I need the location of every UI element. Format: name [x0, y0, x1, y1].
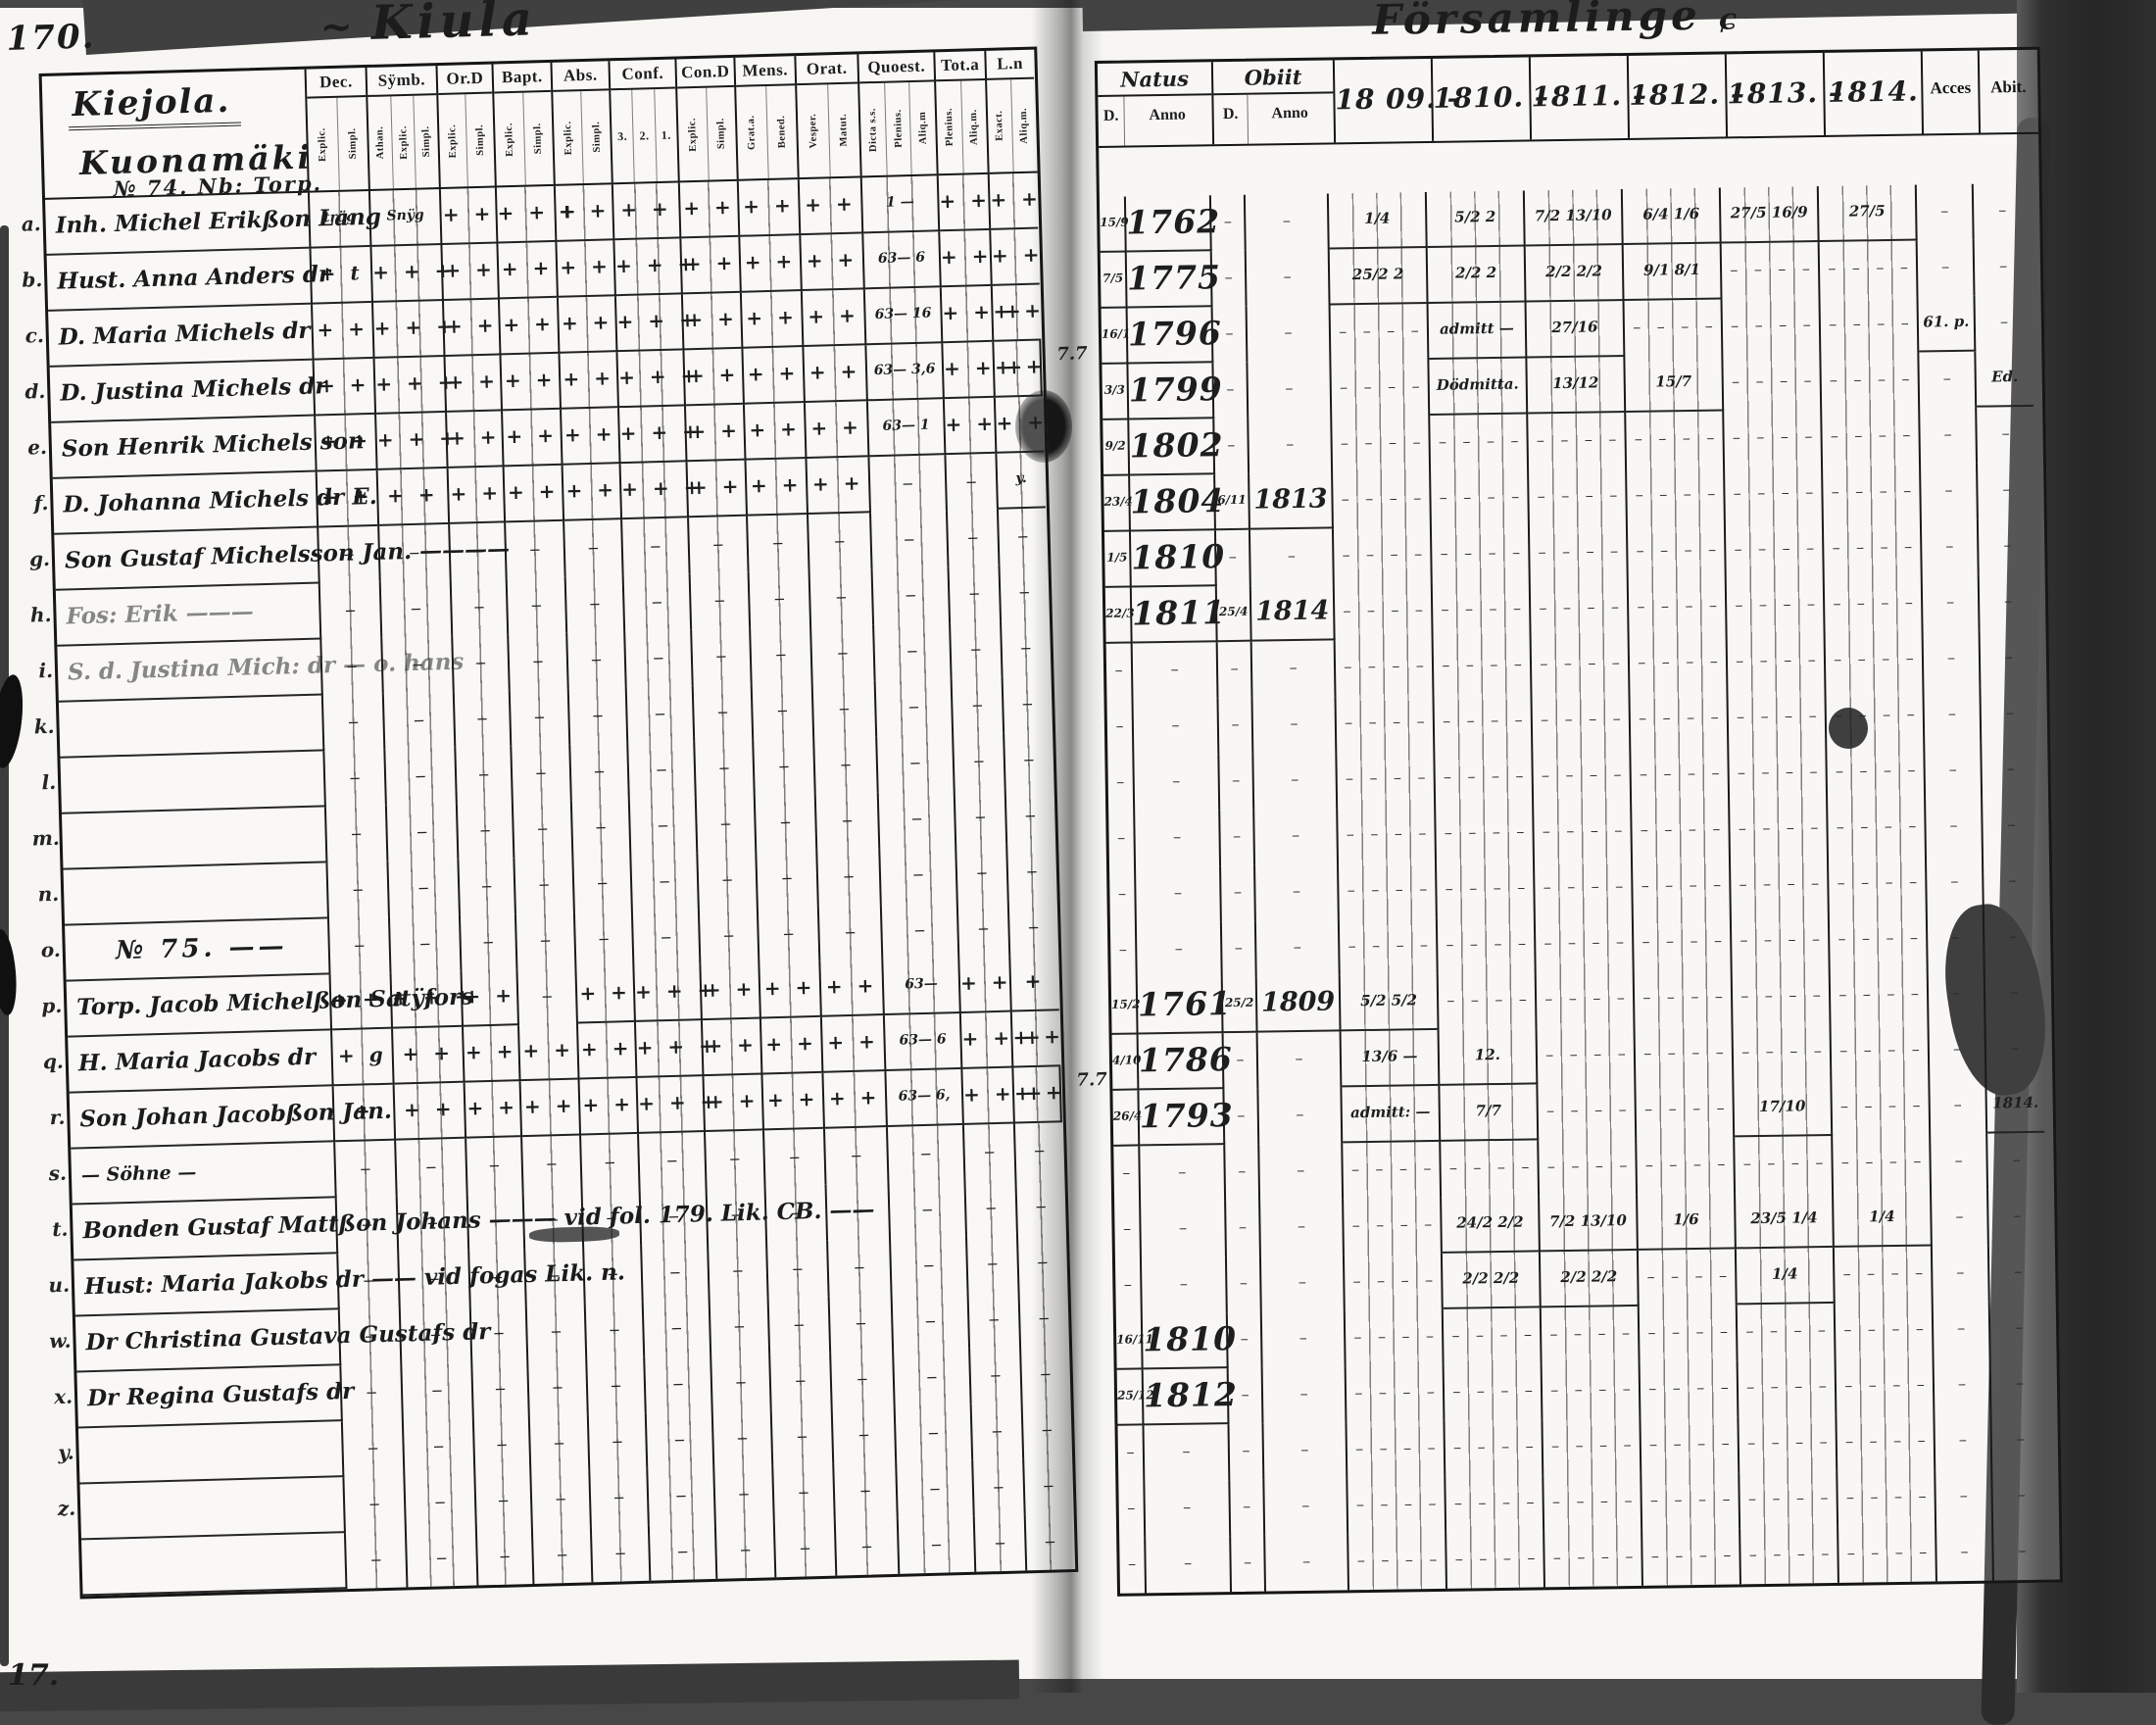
- dash: –: [1228, 419, 1235, 471]
- obiit-day-cell: –: [1216, 530, 1251, 587]
- dash: –: [1401, 1254, 1408, 1306]
- empty-dashes: ––––: [1536, 915, 1633, 969]
- natus-year-cell: 1793: [1139, 1089, 1225, 1146]
- dash: –: [1292, 809, 1298, 862]
- dash: –: [1347, 808, 1353, 861]
- dash: –: [1445, 807, 1451, 860]
- year-header: 1814.: [1825, 51, 1924, 134]
- year-entry-cell: 13/6 —: [1342, 1030, 1441, 1087]
- mark-cell: –: [404, 1418, 476, 1476]
- dash: –: [1522, 1141, 1529, 1194]
- dash: –: [1893, 1358, 1900, 1411]
- dash: –: [1691, 970, 1698, 1023]
- dash: –: [1723, 1473, 1730, 1526]
- year-entry-cell: 2/2 2/2: [1443, 1252, 1542, 1308]
- obiit-day-cell: –: [1220, 810, 1255, 866]
- dash: –: [1525, 1364, 1532, 1417]
- dash: –: [1864, 1023, 1871, 1076]
- mark-cell: –: [711, 1354, 772, 1411]
- dash: –: [1563, 581, 1570, 634]
- year-entry-cell-text: 13/6 —: [1361, 1047, 1417, 1065]
- obiit-day-cell: –: [1230, 1480, 1265, 1537]
- mark-cell: –: [1021, 1346, 1070, 1403]
- year-entry-cell: ––––: [1824, 520, 1923, 577]
- empty-dash: –: [558, 1544, 567, 1563]
- mark-cell: + +: [444, 299, 502, 357]
- dash: –: [1949, 743, 1956, 796]
- mark-cell: + + +: [373, 301, 446, 359]
- dash: –: [1491, 694, 1497, 747]
- natus-day-cell: –: [1107, 755, 1135, 811]
- natus-day-cell: –: [1106, 643, 1134, 699]
- mark-cell: –: [647, 1411, 715, 1469]
- year-entry-cell: ––––: [1434, 693, 1533, 750]
- dash: –: [1912, 1023, 1919, 1076]
- dash: –: [1403, 1365, 1410, 1418]
- empty-dashes: –: [1135, 810, 1219, 863]
- empty-dashes: –: [1118, 1481, 1144, 1534]
- dash: –: [2015, 1245, 2022, 1298]
- dash: –: [1866, 1135, 1873, 1188]
- natus-day-cell: 1/5: [1104, 531, 1132, 587]
- empty-dashes: ––––: [1836, 1302, 1933, 1355]
- margin-letter: n.: [33, 869, 61, 926]
- dash: –: [1854, 353, 1861, 406]
- dash: –: [1839, 968, 1846, 1021]
- empty-dashes: –: [1984, 854, 2041, 908]
- empty-dash: –: [835, 530, 845, 550]
- dash: –: [1285, 306, 1292, 359]
- dash: –: [1577, 1475, 1584, 1528]
- dash: –: [1868, 1303, 1875, 1355]
- year-entry-cell-text: 17/10: [1759, 1097, 1805, 1115]
- mark-text: + +: [449, 424, 501, 449]
- acces-cell: –: [1935, 1357, 1992, 1414]
- dash: –: [1390, 471, 1396, 524]
- dash: –: [1790, 1024, 1797, 1077]
- obiit-day-cell: –: [1229, 1368, 1264, 1425]
- empty-dash: –: [1023, 693, 1033, 713]
- empty-dash: –: [434, 1435, 444, 1454]
- year-entry-cell: ––––: [1629, 578, 1728, 635]
- empty-dash: –: [371, 1549, 381, 1568]
- subheader-label: Simpl.: [474, 124, 486, 156]
- empty-dashes: –: [1924, 687, 1980, 741]
- dash: –: [1812, 912, 1819, 965]
- dash: –: [1832, 466, 1838, 518]
- year-entry-cell: ––––: [1445, 1363, 1543, 1420]
- natus-year-cell: 1811: [1132, 586, 1218, 643]
- dash: –: [1830, 354, 1837, 407]
- dash: –: [2019, 1524, 2026, 1577]
- mark-cell: –: [587, 1357, 647, 1415]
- dash: –: [1648, 1306, 1655, 1359]
- natus-year-cell-text: 1775: [1127, 258, 1221, 297]
- margin-note: 7.7: [1076, 1069, 1107, 1091]
- mark-cell: –: [879, 790, 957, 848]
- empty-dashes: ––––: [1629, 579, 1726, 633]
- mark-cell: –: [474, 1416, 532, 1474]
- dash: –: [1567, 805, 1574, 858]
- dash: –: [1871, 1470, 1878, 1523]
- margin-letter: q.: [37, 1037, 65, 1094]
- year-entry-cell: ––––: [1731, 857, 1830, 913]
- empty-dash: –: [676, 1485, 686, 1504]
- year-entry-cell: 27/5: [1819, 185, 1918, 242]
- person-name: № 75. ——: [74, 918, 328, 978]
- mark-cell: + +: [393, 1027, 465, 1085]
- acces-cell: –: [1930, 1078, 1987, 1135]
- left-column-headers: Dec.Explic.Simpl.Sÿmb.Athan.Explic.Simpl…: [307, 50, 1037, 191]
- dash: –: [1735, 522, 1741, 575]
- dash: –: [1610, 468, 1617, 521]
- dash: –: [2002, 407, 2009, 460]
- empty-dashes: –: [1932, 1190, 1987, 1244]
- dash: –: [1748, 1472, 1755, 1525]
- empty-dash: –: [905, 528, 914, 548]
- mark-cell: –: [698, 852, 759, 910]
- empty-dash: –: [412, 598, 421, 617]
- empty-dash: –: [432, 1379, 442, 1399]
- empty-dashes: –: [1259, 1143, 1342, 1197]
- mark-cell: –: [973, 1458, 1026, 1515]
- empty-dashes: –: [1935, 1357, 1990, 1411]
- dash: –: [1758, 522, 1765, 575]
- acces-cell: –: [1924, 631, 1982, 688]
- mark-cell: –: [624, 573, 693, 631]
- empty-dash: –: [977, 862, 987, 881]
- mark-text: + +: [765, 1031, 817, 1056]
- natus-year-cell-text: 1761: [1138, 984, 1232, 1023]
- empty-dashes: ––––: [1734, 1024, 1831, 1078]
- dash: –: [1999, 183, 2006, 236]
- empty-dash: –: [846, 921, 856, 941]
- empty-dash: –: [993, 1420, 1003, 1440]
- mark-cell: + + +: [636, 1020, 705, 1078]
- mark-cell: + +: [822, 1015, 887, 1073]
- empty-dash: –: [497, 1434, 507, 1454]
- abit-cell: –: [1981, 630, 2038, 687]
- natus-day-cell: 16/11: [1116, 1313, 1144, 1369]
- obiit-day-cell: –: [1221, 865, 1256, 922]
- mark-cell: + +: [762, 1073, 825, 1131]
- abit-cell: –: [1991, 1356, 2049, 1413]
- mark-cell: –: [1000, 564, 1049, 620]
- dash: –: [1844, 1304, 1851, 1356]
- empty-dash: –: [722, 868, 732, 888]
- dash: –: [1834, 577, 1840, 630]
- column-label: Orat.: [796, 54, 857, 85]
- empty-dashes: ––––: [1837, 1357, 1934, 1411]
- dash: –: [1661, 579, 1668, 632]
- empty-dashes: ––––: [1345, 1254, 1442, 1307]
- mark-cell: –: [894, 1349, 972, 1406]
- mark-cell: + +: [746, 459, 808, 517]
- empty-dashes: ––––: [1347, 1365, 1444, 1419]
- natus-day-cell: 7/5: [1101, 253, 1128, 309]
- dash: –: [1415, 583, 1422, 636]
- year-entry-cell-text: 5/2 5/2: [1360, 991, 1417, 1010]
- dash: –: [1886, 912, 1893, 964]
- year-entry-cell-text: 23/5 1/4: [1750, 1208, 1818, 1227]
- dash: –: [1183, 1425, 1190, 1478]
- mark-cell: –: [964, 1124, 1017, 1181]
- mark-cell: –: [880, 846, 958, 904]
- mark-cell: –: [452, 578, 510, 636]
- empty-dashes: ––––: [1823, 465, 1920, 518]
- obiit-year-cell: –: [1256, 919, 1341, 976]
- dash: –: [1430, 1533, 1437, 1586]
- dash: –: [1821, 1471, 1828, 1524]
- empty-dash: –: [736, 1371, 746, 1391]
- year-entry-cell: ––––: [1531, 580, 1630, 637]
- mark-text: + +: [505, 368, 557, 392]
- dash: –: [1115, 644, 1122, 697]
- obiit-day-cell: –: [1214, 419, 1249, 475]
- empty-dash: –: [477, 708, 487, 727]
- year-entry-cell: ––––: [1723, 298, 1822, 355]
- empty-dash: –: [673, 1373, 683, 1393]
- natus-year-cell: –: [1140, 1145, 1226, 1202]
- empty-dashes: –: [1985, 1021, 2043, 1075]
- margin-letter: h.: [25, 590, 53, 647]
- empty-dash: –: [985, 1141, 995, 1160]
- dash: –: [1453, 1421, 1460, 1474]
- year-entry-cell: ––––: [1626, 412, 1725, 468]
- year-entry-cell: ––––: [1337, 751, 1436, 808]
- dash: –: [1616, 915, 1623, 968]
- natus-day-cell: 15/2: [1111, 978, 1139, 1034]
- dash: –: [1760, 634, 1767, 687]
- year-entry-cell: ––––: [1437, 861, 1536, 917]
- dash: –: [1780, 355, 1787, 408]
- dash: –: [1860, 744, 1867, 797]
- mark-cell: –: [472, 1360, 530, 1418]
- dash: –: [1302, 1535, 1309, 1588]
- year-entry-cell: ––––: [1345, 1254, 1444, 1310]
- mark-text: + +: [706, 1033, 758, 1058]
- dash: –: [1343, 528, 1349, 581]
- year-entry-cell: ––––: [1336, 695, 1435, 752]
- mark-text: 63— 6: [899, 1031, 947, 1048]
- dash: –: [1452, 1309, 1459, 1362]
- mark-cell: –: [575, 911, 635, 968]
- mark-text: + +: [684, 251, 736, 275]
- dash: –: [1403, 1421, 1410, 1474]
- natus-year-cell-text: 1793: [1140, 1096, 1234, 1135]
- dash: –: [1755, 299, 1762, 352]
- dash: –: [1371, 808, 1378, 861]
- dash: –: [1869, 1358, 1876, 1411]
- mark-text: + +: [744, 249, 796, 273]
- dash: –: [1665, 803, 1672, 856]
- obiit-day-cell: –: [1229, 1424, 1264, 1481]
- margin-letter: f.: [23, 478, 50, 535]
- empty-dash: –: [530, 538, 540, 558]
- column-header: L.nExact.Aliq.m.: [986, 50, 1036, 172]
- dash: –: [1233, 754, 1240, 807]
- mark-cell: –: [509, 633, 569, 691]
- section-heading: № 74. Nb: Torp.: [113, 171, 322, 201]
- natus-year-cell: 1761: [1138, 977, 1224, 1034]
- year-entry-cell: 2/2 2: [1428, 246, 1527, 303]
- empty-dashes: –: [1917, 184, 1973, 238]
- dash: –: [1617, 971, 1624, 1024]
- dash: –: [1916, 1303, 1923, 1355]
- mark-cell: + +: [939, 174, 992, 231]
- mark-text: + +: [506, 423, 558, 448]
- dash: –: [1639, 692, 1645, 745]
- empty-dash: –: [733, 1259, 743, 1279]
- mark-text: 63— 16: [874, 306, 931, 323]
- dash: –: [1915, 1247, 1922, 1300]
- margin-letter: y.: [48, 1428, 75, 1485]
- year-entry-cell: admitt: —: [1342, 1086, 1441, 1143]
- mark-text: + +: [443, 202, 495, 226]
- dash: –: [1566, 749, 1573, 802]
- mark-cell: + +: [701, 962, 761, 1020]
- mark-cell: –: [967, 1235, 1020, 1292]
- dash: –: [2000, 295, 2007, 348]
- dash: –: [1893, 1414, 1900, 1467]
- year-entry-cell: ––––: [1730, 801, 1829, 858]
- year-entry-cell: 6/4 1/6: [1623, 188, 1722, 245]
- dash: –: [1355, 1366, 1362, 1419]
- empty-dashes: ––––: [1543, 1362, 1640, 1416]
- margin-letter: z.: [49, 1484, 76, 1541]
- empty-dashes: –: [1984, 910, 2042, 963]
- empty-dash: –: [1041, 1363, 1051, 1383]
- natus-day-cell: –: [1107, 699, 1135, 755]
- dash: –: [1517, 806, 1524, 859]
- mark-cell: –: [581, 1134, 641, 1192]
- dash: –: [1543, 805, 1549, 858]
- mark-cell: –: [648, 1467, 716, 1525]
- dash: –: [1673, 1361, 1680, 1414]
- mark-cell: –: [888, 1125, 966, 1183]
- dash: –: [1376, 1143, 1383, 1196]
- empty-dashes: –: [1218, 698, 1251, 751]
- dash: –: [1611, 580, 1618, 633]
- natus-year-cell: –: [1141, 1201, 1227, 1257]
- year-entry-cell: ––––: [1729, 745, 1828, 802]
- dash: –: [1687, 691, 1693, 744]
- person-name: D. Maria Michels dr: [58, 318, 310, 351]
- dash: –: [1773, 1472, 1780, 1525]
- empty-dash: –: [968, 526, 978, 546]
- year-entry-cell: 1/4: [1737, 1248, 1836, 1305]
- natus-year-cell-text: 1804: [1130, 481, 1224, 520]
- empty-dash: –: [659, 814, 668, 834]
- mark-cell: –: [889, 1181, 967, 1239]
- mark-cell: –: [514, 857, 575, 914]
- dash: –: [1546, 1028, 1553, 1081]
- mark-cell: –: [831, 1351, 896, 1408]
- margin-letter: x.: [46, 1372, 73, 1429]
- empty-dashes: ––––: [1821, 353, 1918, 407]
- empty-dash: –: [741, 1539, 751, 1558]
- subheader-cell: 2.: [633, 89, 658, 182]
- name-cell: Torp. Jacob Michelßon Satÿfors: [67, 974, 332, 1037]
- mark-cell: + + +: [634, 964, 703, 1022]
- year-entry-cell: ––––: [1833, 1134, 1932, 1191]
- day-label: D.: [1213, 95, 1249, 145]
- year-entry-cell: ––––: [1528, 413, 1627, 469]
- mark-cell: + +: [759, 961, 822, 1019]
- column-subheaders: 3.2.1.: [611, 88, 678, 182]
- dash: –: [1878, 353, 1885, 406]
- dash: –: [1492, 750, 1498, 803]
- mark-cell: –: [512, 745, 572, 803]
- mark-cell: –: [329, 917, 392, 975]
- empty-dashes: –: [1140, 1145, 1224, 1199]
- dash: –: [1662, 635, 1669, 688]
- dash: –: [1445, 862, 1452, 915]
- year-entry-cell: ––––: [1632, 802, 1731, 859]
- dash: –: [1443, 695, 1449, 748]
- year-entry-cell: ––––: [1630, 690, 1729, 747]
- natus-day-cell: 26/4: [1112, 1090, 1140, 1146]
- dash: –: [1564, 637, 1571, 690]
- column-subheaders: Plenius.Aliq.m.: [936, 80, 988, 173]
- mark-text: 63—: [905, 976, 938, 993]
- empty-dashes: ––––: [1821, 297, 1918, 351]
- mark-cell: + +: [991, 229, 1040, 286]
- mark-cell: –: [644, 1300, 712, 1357]
- dash: –: [2015, 1301, 2022, 1354]
- subheader-cell: 1.: [655, 88, 678, 181]
- empty-dashes: ––––: [1635, 969, 1732, 1023]
- mark-text: y.: [1015, 470, 1027, 486]
- name-cell: D. Maria Michels dr: [48, 305, 314, 368]
- year-entry-cell: 9/1 8/1: [1624, 244, 1723, 301]
- mark-cell: –: [816, 792, 881, 850]
- obiit-label: Obiit: [1213, 60, 1333, 95]
- dash: –: [1127, 1426, 1134, 1479]
- year-entry-cell: ––––: [1348, 1533, 1447, 1590]
- dash: –: [1537, 414, 1543, 467]
- year-entry-cell: 27/5 16/9: [1721, 186, 1820, 243]
- year-entry-cell: ––––: [1724, 410, 1823, 467]
- dash: –: [1348, 919, 1355, 972]
- dash: –: [1708, 523, 1715, 576]
- mark-text: + +: [620, 197, 672, 222]
- dash: –: [1541, 693, 1547, 746]
- dash: –: [1626, 1530, 1633, 1583]
- empty-dashes: –: [1252, 696, 1335, 750]
- year-entry-cell-text: 1/6: [1673, 1210, 1699, 1228]
- empty-dash: –: [535, 706, 545, 725]
- dash: –: [1731, 243, 1738, 296]
- year-entry-cell: ––––: [1533, 748, 1632, 805]
- abit-cell: –: [1975, 239, 2033, 296]
- natus-day-cell-text: 15/9: [1100, 215, 1129, 228]
- dash: –: [1368, 640, 1375, 693]
- mark-cell: + +: [742, 291, 805, 349]
- year-entry-cell: ––––: [1625, 300, 1724, 357]
- mark-cell: + +: [500, 298, 561, 356]
- empty-dash: –: [599, 928, 609, 948]
- year-entry-cell: ––––: [1739, 1415, 1837, 1472]
- dash: –: [1123, 1147, 1130, 1200]
- dash: –: [1774, 1528, 1781, 1581]
- obiit-year-cell: –: [1258, 1087, 1343, 1144]
- dash: –: [1393, 695, 1399, 748]
- mark-text: + +: [466, 1095, 518, 1119]
- dash: –: [1366, 472, 1373, 525]
- dash: –: [1742, 1025, 1749, 1078]
- dash: –: [1237, 1033, 1244, 1086]
